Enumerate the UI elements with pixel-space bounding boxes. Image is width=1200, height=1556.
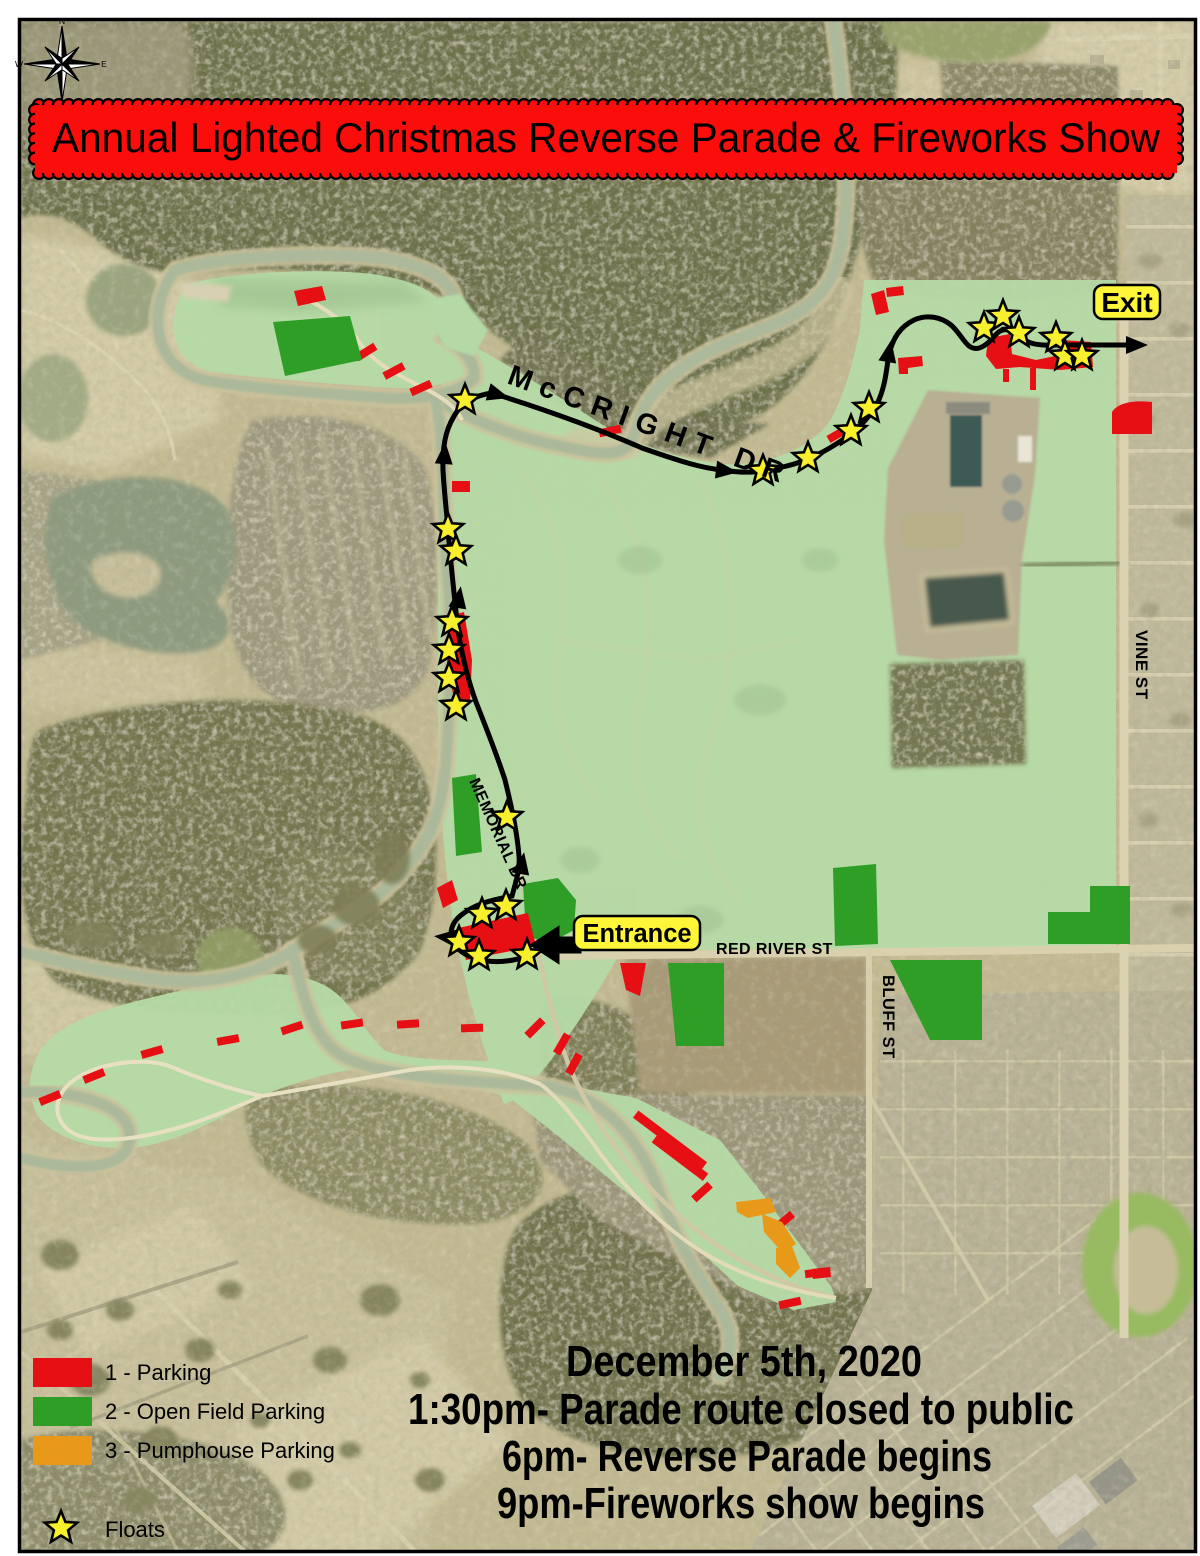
svg-text:BLUFF ST: BLUFF ST <box>879 975 897 1059</box>
svg-text:E: E <box>101 59 107 69</box>
svg-text:Entrance: Entrance <box>582 920 691 948</box>
svg-text:6pm- Reverse Parade begins: 6pm- Reverse Parade begins <box>502 1432 992 1481</box>
svg-text:Floats: Floats <box>105 1517 165 1542</box>
svg-text:2 - Open Field Parking: 2 - Open Field Parking <box>105 1399 325 1424</box>
svg-text:3 - Pumphouse Parking: 3 - Pumphouse Parking <box>105 1438 335 1463</box>
svg-text:December 5th, 2020: December 5th, 2020 <box>566 1337 922 1386</box>
svg-text:9pm-Fireworks show begins: 9pm-Fireworks show begins <box>497 1479 985 1528</box>
svg-text:N: N <box>59 16 65 26</box>
svg-text:Annual Lighted Christmas Rever: Annual Lighted Christmas Reverse Parade … <box>52 114 1161 161</box>
svg-text:RED RIVER ST: RED RIVER ST <box>716 941 833 958</box>
svg-text:VINE ST: VINE ST <box>1132 630 1151 700</box>
svg-text:W: W <box>15 59 23 69</box>
svg-text:Exit: Exit <box>1101 287 1152 318</box>
svg-text:1:30pm- Parade route closed to: 1:30pm- Parade route closed to public <box>408 1385 1074 1434</box>
svg-text:1 - Parking: 1 - Parking <box>105 1360 211 1385</box>
